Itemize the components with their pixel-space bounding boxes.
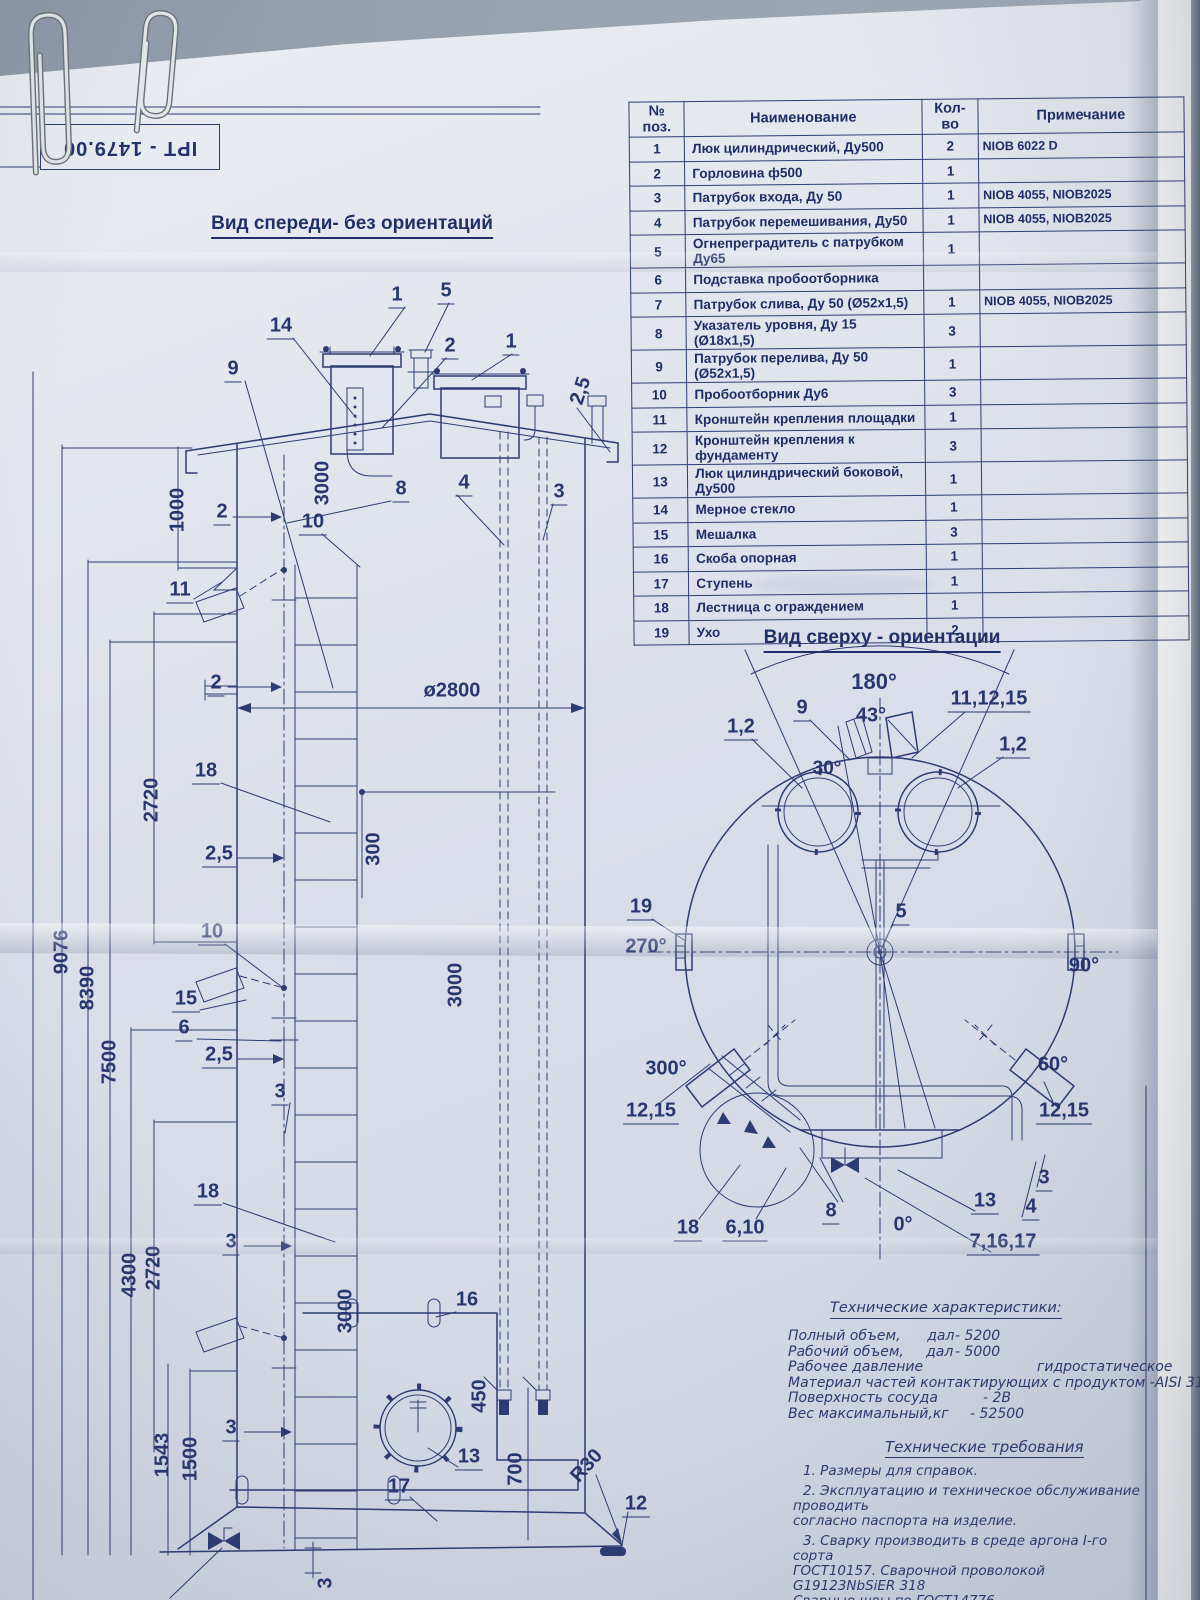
paper-clip-icon bbox=[30, 14, 69, 172]
photographed-drawing: Вид спереди- без ориентаций Вид сверху -… bbox=[0, 0, 1200, 1600]
paper-clip-icon bbox=[137, 12, 177, 133]
paper-clips bbox=[0, 0, 1200, 1600]
